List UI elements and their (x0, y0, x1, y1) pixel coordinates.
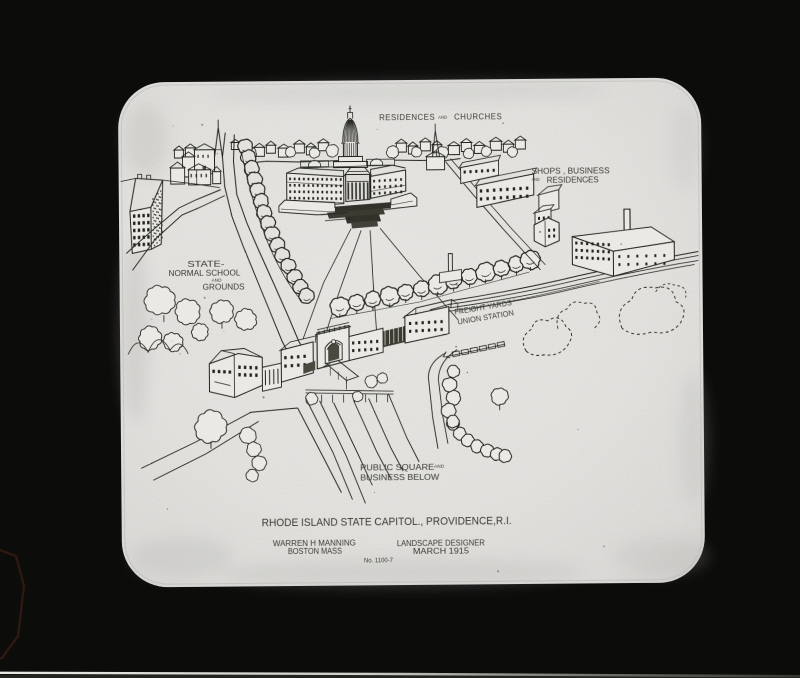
svg-text:AND: AND (434, 464, 445, 469)
svg-text:No. 1100-7: No. 1100-7 (364, 558, 394, 564)
svg-text:BOSTON MASS: BOSTON MASS (288, 547, 342, 556)
svg-text:AND: AND (532, 177, 541, 182)
svg-text:BUSINESS BELOW: BUSINESS BELOW (360, 472, 439, 483)
svg-text:PUBLIC SQUARE: PUBLIC SQUARE (360, 462, 434, 473)
svg-text:MARCH 1915: MARCH 1915 (413, 546, 470, 555)
svg-text:RHODE ISLAND STATE CAPITOL., P: RHODE ISLAND STATE CAPITOL., PROVIDENCE,… (262, 515, 512, 529)
svg-text:NORMAL SCHOOL: NORMAL SCHOOL (168, 267, 240, 278)
svg-text:CHURCHES: CHURCHES (454, 112, 502, 121)
svg-text:RESIDENCES: RESIDENCES (547, 175, 599, 184)
svg-text:GROUNDS: GROUNDS (203, 281, 245, 291)
svg-text:RESIDENCES: RESIDENCES (379, 113, 435, 122)
svg-text:AND: AND (438, 115, 448, 120)
